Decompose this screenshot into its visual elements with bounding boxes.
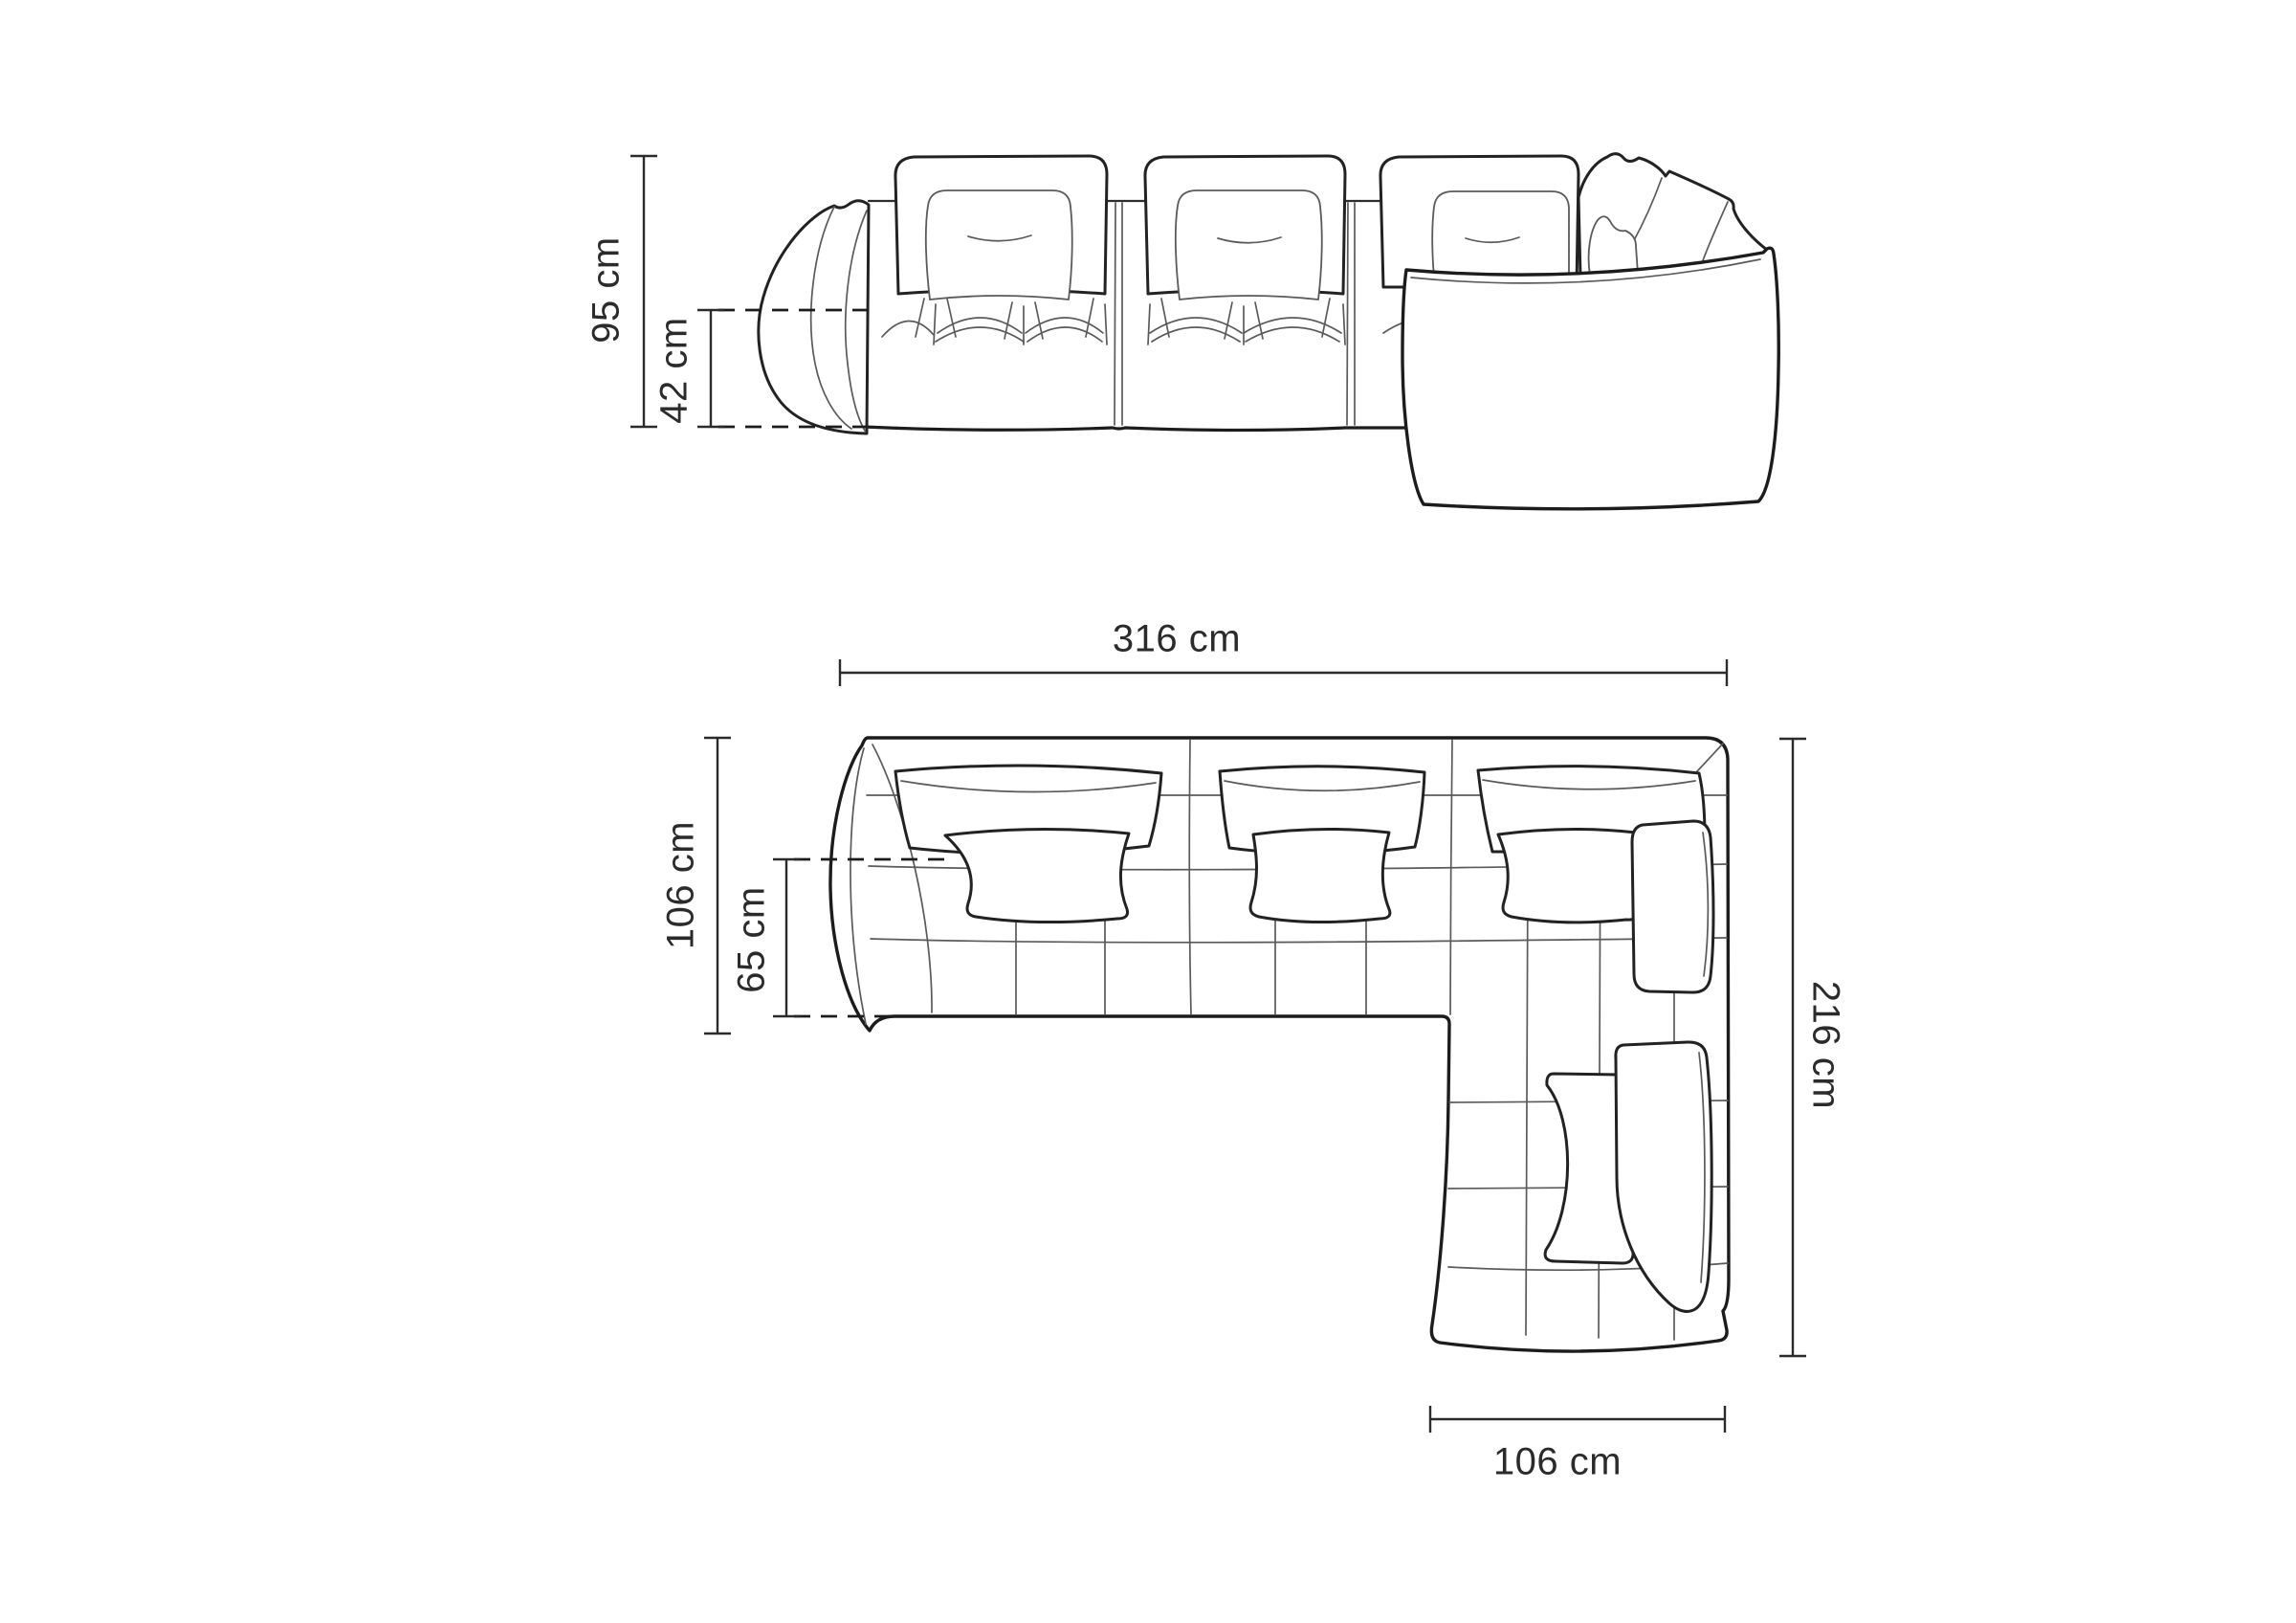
dimension-label-overall-depth: 216 cm	[1804, 981, 1846, 1109]
tuft-pleat	[916, 299, 924, 337]
dimension-overall-width: 316 cm	[840, 618, 1727, 686]
corner-seat	[1402, 248, 1778, 509]
dimension-label-seat-height: 42 cm	[653, 317, 695, 423]
seat-tufting	[1246, 327, 1339, 342]
dimension-label-chaise-width: 106 cm	[1493, 1441, 1622, 1483]
dimension-module-depth: 106 cm	[660, 738, 731, 1034]
dimension-label-module-depth: 106 cm	[660, 821, 702, 949]
seat-tufting	[882, 321, 934, 337]
dimension-overall-depth: 216 cm	[1779, 739, 1846, 1356]
seat-pillow-plan	[945, 829, 1129, 922]
tuft-pleat	[1148, 304, 1150, 345]
seat-tufting	[1027, 327, 1102, 342]
top-plan-view: 316 cm 106 cm 65 cm 216 cm 1	[660, 618, 1847, 1483]
dimension-label-overall-width: 316 cm	[1113, 618, 1241, 660]
tuft-pleat	[1225, 302, 1232, 339]
dimension-label-seat-depth: 65 cm	[731, 886, 773, 992]
base-edge	[864, 427, 1406, 431]
dimension-seat-height: 42 cm	[653, 310, 724, 427]
tuft-pleat	[934, 304, 936, 345]
seat-pillow-plan	[1498, 829, 1638, 922]
sofa-front-drawing	[759, 154, 1778, 509]
front-elevation-view: 95 cm 42 cm	[585, 154, 1779, 509]
tuft-pleat	[1255, 302, 1263, 339]
module-seam	[1115, 203, 1115, 425]
dimension-seat-depth: 65 cm	[731, 859, 800, 1016]
dimension-overall-height: 95 cm	[585, 156, 657, 427]
sofa-dimension-diagram: 95 cm 42 cm	[0, 0, 2296, 1623]
seat-tufting	[1026, 318, 1103, 333]
technical-drawing-canvas: 95 cm 42 cm	[0, 0, 2296, 1623]
dimension-chaise-width: 106 cm	[1430, 1406, 1725, 1483]
tuft-pleat	[1322, 299, 1330, 337]
tuft-pleat	[1161, 299, 1169, 337]
sofa-plan-drawing	[830, 738, 1729, 1351]
corner-bolster-pillow	[1632, 821, 1713, 992]
tuft-pleat	[1343, 304, 1345, 345]
tuft-pleat	[1086, 299, 1093, 337]
seat-pillow-plan	[1250, 829, 1390, 922]
seat-tufting	[936, 327, 1024, 342]
tuft-pleat	[1035, 302, 1043, 339]
head-pillow	[1176, 190, 1322, 300]
tuft-pleat	[947, 299, 956, 337]
module-seam	[1347, 203, 1348, 425]
tuft-pleat	[1105, 304, 1107, 345]
dimension-label-overall-height: 95 cm	[585, 236, 628, 343]
left-armrest	[759, 201, 869, 434]
head-pillow	[926, 190, 1072, 300]
